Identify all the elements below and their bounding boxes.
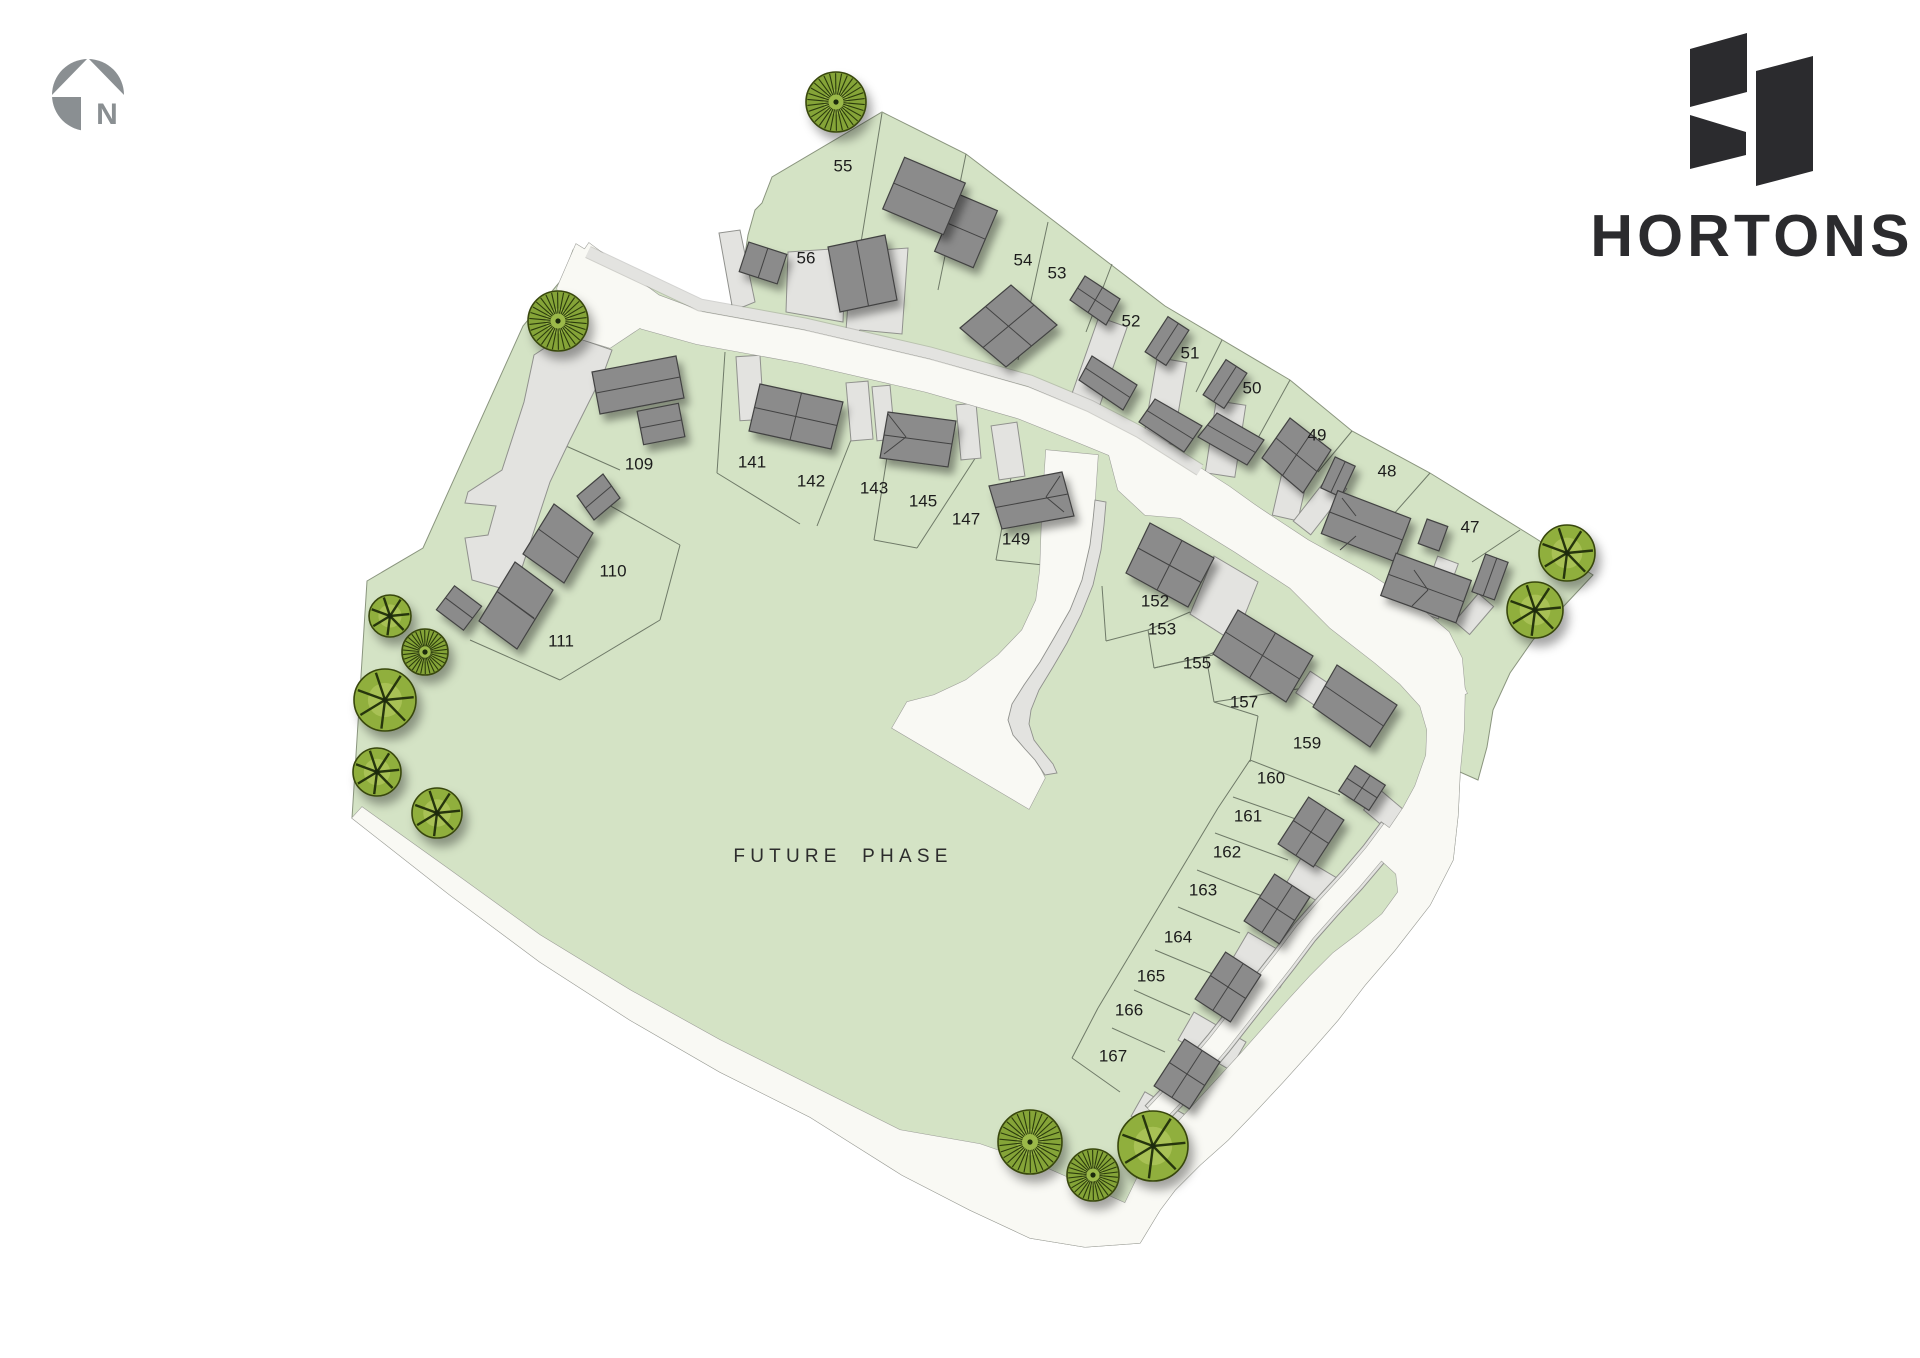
svg-text:161: 161 [1234,807,1262,826]
svg-text:147: 147 [952,510,980,529]
svg-text:109: 109 [625,455,653,474]
svg-text:145: 145 [909,492,937,511]
svg-text:143: 143 [860,479,888,498]
svg-text:153: 153 [1148,620,1176,639]
svg-text:152: 152 [1141,592,1169,611]
svg-text:54: 54 [1014,251,1033,270]
svg-text:149: 149 [1002,530,1030,549]
svg-text:155: 155 [1183,654,1211,673]
svg-text:167: 167 [1099,1047,1127,1066]
svg-text:160: 160 [1257,769,1285,788]
svg-text:53: 53 [1048,264,1067,283]
svg-text:55: 55 [834,157,853,176]
svg-text:FUTURE PHASE: FUTURE PHASE [733,846,952,867]
svg-text:111: 111 [548,632,574,651]
svg-text:159: 159 [1293,734,1321,753]
svg-text:N: N [96,98,118,131]
svg-text:142: 142 [797,472,825,491]
svg-text:47: 47 [1461,518,1480,537]
svg-text:110: 110 [599,562,626,581]
svg-text:49: 49 [1308,426,1327,445]
svg-text:165: 165 [1137,967,1165,986]
svg-text:48: 48 [1378,462,1397,481]
svg-text:51: 51 [1181,344,1200,363]
svg-text:HORTONS: HORTONS [1590,203,1913,269]
svg-text:56: 56 [797,249,816,268]
svg-text:164: 164 [1164,928,1192,947]
svg-text:162: 162 [1213,843,1241,862]
svg-text:163: 163 [1189,881,1217,900]
svg-text:157: 157 [1230,693,1258,712]
svg-text:141: 141 [738,453,766,472]
svg-text:52: 52 [1122,312,1141,331]
svg-text:50: 50 [1243,379,1262,398]
svg-text:166: 166 [1115,1001,1143,1020]
